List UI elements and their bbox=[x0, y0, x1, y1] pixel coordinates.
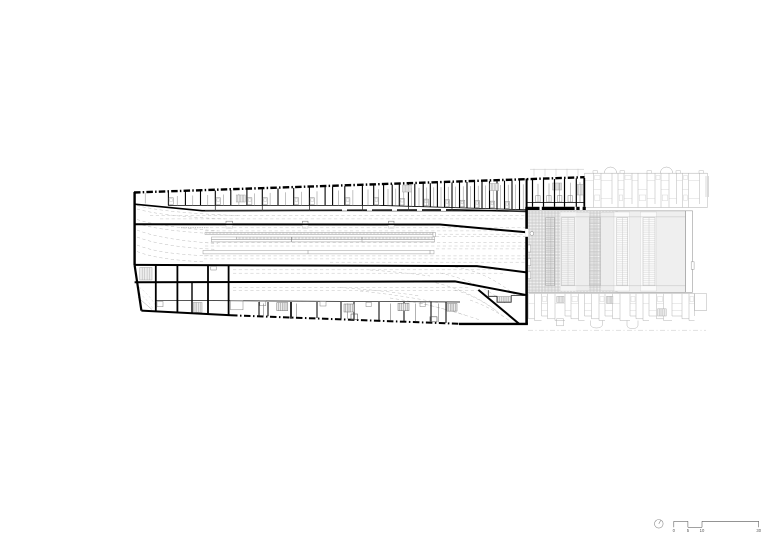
svg-text:10: 10 bbox=[700, 528, 705, 533]
svg-text:30: 30 bbox=[756, 528, 761, 533]
